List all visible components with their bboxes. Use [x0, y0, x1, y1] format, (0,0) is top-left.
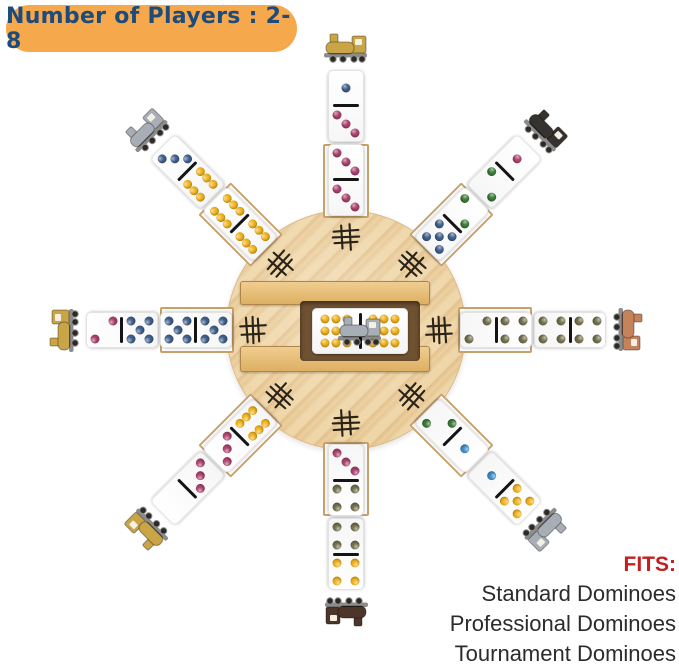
domino-tile — [160, 312, 232, 348]
domino-pip — [333, 576, 342, 585]
domino-pip — [501, 317, 510, 326]
domino-pip — [391, 327, 400, 336]
domino-pip — [333, 559, 342, 568]
domino-pip — [511, 153, 524, 166]
domino-pip — [221, 455, 234, 468]
domino-pip — [421, 230, 434, 243]
domino-half — [161, 312, 195, 348]
domino-pip — [350, 502, 359, 511]
copper-train-icon — [613, 308, 643, 352]
domino-pip — [194, 457, 207, 470]
gold-train-icon — [324, 33, 368, 63]
domino-pip — [174, 326, 183, 335]
domino-pip — [169, 153, 182, 166]
domino-half — [461, 312, 495, 348]
domino-chain — [413, 107, 569, 263]
players-banner: Number of Players : 2-8 — [6, 5, 297, 52]
gold-train-icon — [49, 308, 79, 352]
fits-title: FITS: — [450, 550, 676, 579]
domino-pip — [350, 540, 359, 549]
domino-tile — [534, 312, 606, 348]
domino-half — [328, 145, 364, 179]
domino-tile — [328, 144, 364, 216]
domino-half — [497, 312, 531, 348]
domino-half — [328, 555, 364, 589]
tally-mark — [331, 408, 361, 438]
domino-pip — [333, 149, 342, 158]
domino-half — [328, 107, 364, 141]
domino-pip — [350, 576, 359, 585]
domino-pip — [342, 120, 351, 129]
domino-pip — [156, 152, 169, 165]
domino-pip — [511, 495, 524, 508]
domino-divider — [333, 479, 359, 482]
domino-pip — [350, 202, 359, 211]
domino-half — [571, 312, 605, 348]
domino-pip — [523, 495, 536, 508]
fits-item: Professional Dominoes — [450, 609, 676, 639]
domino-pip — [433, 230, 446, 243]
domino-pip — [333, 523, 342, 532]
domino-pip — [221, 430, 234, 443]
domino-pip — [501, 334, 510, 343]
domino-pip — [511, 507, 524, 520]
domino-pip — [342, 158, 351, 167]
domino-half — [123, 312, 157, 348]
domino-pip — [127, 334, 136, 343]
domino-pip — [592, 317, 601, 326]
domino-pip — [350, 128, 359, 137]
domino-pip — [333, 449, 342, 458]
domino-tile — [328, 444, 364, 516]
domino-pip — [592, 334, 601, 343]
domino-pip — [556, 334, 565, 343]
domino-divider — [495, 317, 498, 343]
domino-pip — [342, 458, 351, 467]
domino-chain — [49, 311, 232, 349]
center-train-token — [330, 316, 390, 346]
domino-pip — [350, 523, 359, 532]
domino-divider — [569, 317, 572, 343]
domino-pip — [498, 495, 511, 508]
domino-pip — [165, 334, 174, 343]
domino-pip — [218, 317, 227, 326]
domino-pip — [433, 243, 446, 256]
domino-tile — [86, 312, 158, 348]
domino-pip — [350, 559, 359, 568]
tally-mark-icon — [331, 222, 361, 252]
gold-train-token — [49, 308, 84, 352]
domino-pip — [218, 334, 227, 343]
copper-train-token — [608, 308, 643, 352]
domino-pip — [136, 326, 145, 335]
domino-pip — [458, 442, 471, 455]
tally-mark-icon — [424, 315, 454, 345]
domino-half — [535, 312, 569, 348]
domino-pip — [144, 317, 153, 326]
domino-half — [328, 481, 364, 515]
domino-pip — [391, 338, 400, 347]
fits-item: Standard Dominoes — [450, 579, 676, 609]
domino-pip — [539, 334, 548, 343]
domino-pip — [210, 326, 219, 335]
domino-pip — [350, 485, 359, 494]
domino-pip — [333, 540, 342, 549]
fits-block: FITS: Standard Dominoes Professional Dom… — [450, 550, 676, 669]
silver-train-icon — [330, 316, 390, 346]
tally-mark — [424, 315, 454, 345]
domino-half — [328, 71, 364, 105]
domino-pip — [518, 317, 527, 326]
domino-pip — [194, 482, 207, 495]
domino-pip — [482, 317, 491, 326]
domino-tile — [328, 518, 364, 590]
brown-train-icon — [324, 597, 368, 627]
domino-chain — [123, 397, 279, 553]
domino-divider — [333, 553, 359, 556]
domino-pip — [458, 217, 471, 230]
domino-chain — [413, 397, 569, 553]
domino-chain — [460, 311, 643, 349]
domino-pip — [556, 317, 565, 326]
domino-pip — [433, 218, 446, 231]
domino-pip — [511, 482, 524, 495]
domino-pip — [320, 315, 329, 324]
domino-half — [328, 181, 364, 215]
domino-pip — [91, 334, 100, 343]
domino-pip — [144, 334, 153, 343]
domino-half — [197, 312, 231, 348]
fits-item: Tournament Dominoes — [450, 639, 676, 669]
domino-pip — [485, 469, 498, 482]
domino-pip — [201, 334, 210, 343]
domino-tile — [328, 70, 364, 142]
domino-pip — [182, 334, 191, 343]
domino-pip — [465, 334, 474, 343]
domino-pip — [575, 334, 584, 343]
domino-pip — [391, 315, 400, 324]
domino-pip — [350, 166, 359, 175]
domino-pip — [320, 327, 329, 336]
domino-pip — [445, 230, 458, 243]
tally-mark-icon — [331, 408, 361, 438]
tally-mark — [238, 315, 268, 345]
domino-pip — [201, 317, 210, 326]
domino-pip — [333, 111, 342, 120]
gold-train-token — [324, 33, 368, 68]
domino-pip — [518, 334, 527, 343]
tally-mark-icon — [238, 315, 268, 345]
players-banner-text: Number of Players : 2-8 — [6, 4, 297, 54]
domino-half — [328, 519, 364, 553]
domino-pip — [539, 317, 548, 326]
domino-pip — [127, 317, 136, 326]
domino-pip — [194, 469, 207, 482]
domino-half — [328, 445, 364, 479]
domino-pip — [485, 166, 498, 179]
domino-pip — [182, 317, 191, 326]
tally-mark — [331, 222, 361, 252]
domino-pip — [165, 317, 174, 326]
domino-pip — [350, 466, 359, 475]
domino-pip — [445, 417, 458, 430]
domino-pip — [333, 485, 342, 494]
domino-pip — [459, 192, 472, 205]
domino-pip — [320, 338, 329, 347]
domino-chain — [123, 107, 279, 263]
domino-pip — [333, 502, 342, 511]
domino-pip — [221, 442, 234, 455]
domino-tile — [460, 312, 532, 348]
domino-half — [87, 312, 121, 348]
domino-pip — [342, 194, 351, 203]
domino-pip — [485, 190, 498, 203]
domino-pip — [108, 317, 117, 326]
domino-chain — [327, 33, 365, 216]
domino-pip — [421, 417, 434, 430]
domino-pip — [342, 84, 351, 93]
domino-pip — [575, 317, 584, 326]
domino-pip — [333, 185, 342, 194]
domino-chain — [327, 444, 365, 627]
brown-train-token — [324, 592, 368, 627]
